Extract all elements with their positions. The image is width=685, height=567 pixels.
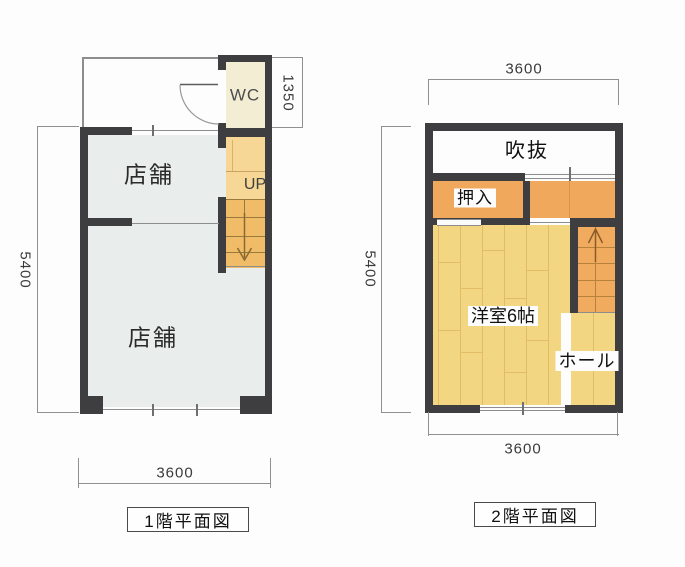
f1-dim-height-tick-top (37, 126, 79, 127)
f1-dim-width-tick-left (78, 458, 79, 488)
f1-wall-bottom-right-pillar (240, 396, 272, 414)
f2-void-label: 吹抜 (505, 141, 549, 161)
f1-wc-wall-bottom (226, 128, 265, 137)
f2-stair-center-line (595, 227, 596, 313)
f1-dim-height-text: 5400 (18, 251, 33, 288)
f2-plank-h2 (482, 250, 504, 251)
f1-dim-width-tick-right (270, 458, 271, 488)
f1-porch-left-line (82, 57, 84, 127)
f2-dim-height-line (381, 127, 382, 413)
f1-wall-left (80, 127, 88, 413)
f1-partition-stub (88, 218, 132, 226)
f2-landing-floor (530, 181, 615, 218)
floorplan-canvas: 5400 1350 3600 3600 5400 3600 店舗 店舗 WC U… (0, 0, 685, 567)
f1-dim-width-text: 3600 (156, 466, 193, 481)
f2-room-label: 洋室6帖 (468, 306, 538, 326)
f2-dim-height-tick-bottom (381, 412, 411, 413)
f2-void-window-tick (569, 167, 571, 181)
f2-dim-bottom-tick-left (428, 412, 429, 436)
f2-landing-vline (569, 181, 570, 218)
f1-stair-bottom-line (226, 266, 265, 267)
f2-title: 2階平面図 (491, 502, 578, 527)
f2-dim-top-tick-left (428, 79, 429, 105)
f1-porch-top-line (82, 57, 218, 59)
f1-dim-wc-tick-top (272, 57, 303, 58)
f1-dim-height-tick-bottom (37, 412, 79, 413)
f2-plank-v6 (548, 225, 549, 405)
f1-dim-wc-text: 1350 (281, 74, 296, 111)
f2-wall-bottom-right (565, 405, 623, 413)
f2-plank-h3 (460, 288, 482, 289)
f1-wc-wall-left-b (218, 123, 226, 148)
f2-stair-treads (578, 227, 615, 313)
f2-tread-line-1 (578, 247, 615, 248)
f2-stair-header-wall (570, 218, 623, 227)
f2-plank-h7 (460, 352, 482, 353)
f2-title-box: 2階平面図 (474, 502, 596, 527)
f1-stair-winder-vline (244, 200, 245, 218)
f2-wall-left (425, 123, 433, 413)
f2-dim-bottom-text: 3600 (504, 442, 541, 457)
f1-wc-wall-left-c (218, 197, 226, 273)
f1-up-label: UP (244, 177, 266, 193)
f1-tread-line-1 (226, 199, 265, 200)
f2-tread-line-3 (578, 280, 615, 281)
f2-closet-door-band (437, 219, 481, 226)
f1-storefront-tick-1 (152, 404, 154, 416)
f1-storefront-window-line (103, 409, 240, 410)
f2-dim-bottom-tick-right (617, 412, 618, 436)
f2-tread-line-4 (578, 296, 615, 297)
f1-dim-wc-line (302, 58, 303, 128)
f1-dim-width-line (79, 483, 271, 484)
f1-title: 1階平面図 (144, 507, 231, 532)
f1-stair-landing-line (226, 171, 265, 172)
f2-plank-v2 (460, 225, 461, 405)
f2-dim-height-tick-top (381, 126, 411, 127)
f1-wc-label: WC (230, 87, 260, 104)
f2-landing-opening-line (530, 222, 570, 223)
f1-tread-line-3 (226, 236, 265, 237)
f1-wall-top (80, 127, 132, 135)
f2-closet-label: 押入 (454, 189, 496, 208)
f1-partition-line (132, 223, 219, 224)
f1-tread-line-2 (226, 217, 265, 218)
f1-shop-upper-label: 店舗 (124, 164, 174, 187)
f2-dim-top-text: 3600 (505, 62, 542, 77)
f1-entrance-opening-line (132, 130, 218, 131)
f2-plank-h5 (526, 270, 548, 271)
f1-storefront-tick-2 (196, 404, 198, 416)
f2-plank-h4 (504, 298, 526, 299)
f1-wall-right (265, 55, 272, 413)
door-swing-arc (180, 85, 219, 124)
f1-stair-treads (226, 200, 265, 268)
f1-stair-upper-vline (232, 140, 233, 171)
f2-plank-h9 (526, 340, 548, 341)
f2-dim-top-line (429, 79, 619, 80)
f2-plank-h8 (504, 372, 526, 373)
f1-title-box: 1階平面図 (127, 507, 249, 532)
f2-plank-v1 (438, 225, 439, 405)
f2-tread-line-2 (578, 263, 615, 264)
f1-wc-wall-top (218, 55, 272, 62)
f2-stair-wall-left (570, 227, 578, 313)
f1-entrance-tick (152, 125, 154, 136)
f2-wall-bottom-left (425, 405, 480, 413)
f1-dim-height-line (37, 127, 38, 413)
f2-plank-h6 (438, 330, 460, 331)
f2-wall-mid (433, 173, 525, 181)
f2-plank-h1 (438, 262, 460, 263)
f1-tread-line-4 (226, 252, 265, 253)
f1-entrance-door (180, 85, 219, 125)
f2-dim-bottom-line (429, 434, 619, 435)
f1-wc-wall-left-a (218, 55, 226, 70)
f2-dim-height-text: 5400 (363, 250, 378, 287)
f2-bottom-window-tick (522, 402, 524, 415)
f1-dim-wc-tick-bottom (272, 127, 303, 128)
f2-hall-label: ホール (556, 351, 619, 371)
f1-shop-lower-label: 店舗 (128, 327, 178, 350)
f2-wall-top (425, 123, 623, 131)
f2-dim-top-tick-right (618, 79, 619, 105)
f1-wall-bottom-left-pillar (80, 396, 103, 414)
